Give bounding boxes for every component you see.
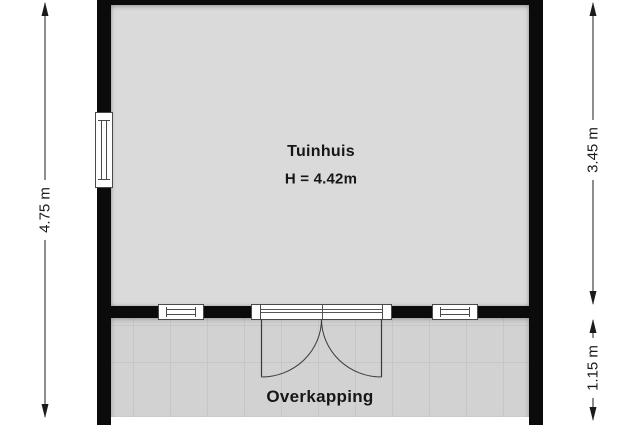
door-center-divider	[322, 305, 323, 319]
dimension-label-right-bottom: 1.15 m	[585, 338, 602, 398]
wall-middle-segment	[204, 306, 251, 318]
floor-plan: Tuinhuis H = 4.42m Overkapping 4.75 m 3.…	[0, 0, 640, 430]
middle-wall-window-1	[158, 304, 204, 320]
arrow-up-icon	[42, 2, 49, 16]
wall-middle-segment	[478, 306, 529, 318]
arrow-down-icon	[590, 407, 597, 421]
arrow-up-icon	[590, 319, 597, 333]
door-post-left	[251, 304, 261, 320]
left-wall-window	[95, 112, 113, 188]
room-label-tuinhuis: Tuinhuis	[287, 143, 355, 161]
wall-middle-segment	[392, 306, 432, 318]
dimension-label-right-top: 3.45 m	[585, 120, 602, 180]
wall-right	[529, 0, 543, 425]
wall-top	[97, 0, 543, 5]
double-door-frame	[251, 304, 392, 320]
wall-middle-segment	[111, 306, 158, 318]
arrow-up-icon	[590, 2, 597, 16]
arrow-down-icon	[42, 404, 49, 418]
room-label-overkapping: Overkapping	[266, 387, 373, 407]
middle-wall-window-2	[432, 304, 478, 320]
dimension-label-left: 4.75 m	[37, 180, 54, 240]
door-post-right	[382, 304, 392, 320]
wall-left	[97, 0, 111, 425]
room-height-label: H = 4.42m	[285, 171, 357, 188]
arrow-down-icon	[590, 291, 597, 305]
